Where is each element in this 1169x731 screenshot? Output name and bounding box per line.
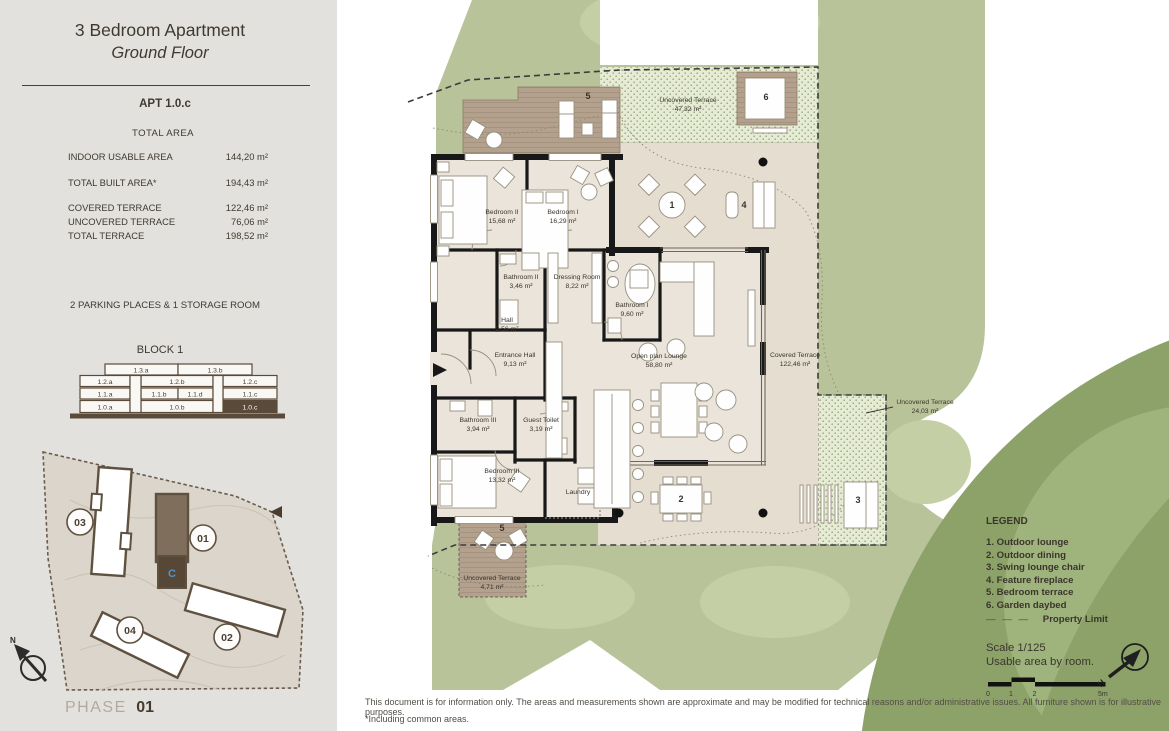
area-row: UNCOVERED TERRACE 76,06 m² [68,216,268,227]
grass-patch [879,420,971,504]
property-limit-label: Property Limit [1043,614,1108,625]
legend-heading: LEGEND [986,516,1156,527]
north-letter: N [1095,677,1107,689]
page-subtitle: Ground Floor [0,44,320,63]
block-unit-label: 1.0.a [97,405,112,412]
divider [22,85,310,86]
page-title: 3 Bedroom Apartment [0,20,320,41]
grass-patch [700,566,850,638]
legend-item: 5. Bedroom terrace [986,587,1156,600]
block-unit-label-current: 1.0.c [243,405,258,412]
usable-area-label: Usable area by room. [986,655,1094,669]
legend-item: 2. Outdoor dining [986,550,1156,563]
marker-4: 4 [741,200,746,210]
area-label: TOTAL TERRACE [68,230,144,241]
area-label: TOTAL BUILT AREA* [68,177,157,188]
area-row: INDOOR USABLE AREA 144,20 m² [68,151,268,162]
scale-note: Scale 1/125 Usable area by room. [986,641,1094,669]
building-badge-04: 04 [124,625,136,637]
property-limit-legend: — — — Property Limit [986,614,1108,625]
area-value: 198,52 m² [226,230,268,241]
marker-6: 6 [763,92,768,102]
phase-label: PHASE 01 [65,699,154,716]
area-value: 122,46 m² [226,202,268,213]
area-label: UNCOVERED TERRACE [68,216,175,227]
legend-item: 4. Feature fireplace [986,575,1156,588]
total-area-heading: TOTAL AREA [0,128,326,139]
block-unit-label: 1.1.b [151,392,166,399]
scale-label: Scale 1/125 [986,641,1094,655]
block-unit-label: 1.1.c [243,392,258,399]
dashed-line-icon: — — — [986,614,1030,625]
area-row: COVERED TERRACE 122,46 m² [68,202,268,213]
marker-5-bottom: 5 [499,523,504,533]
floorplan-page: 3 Bedroom Apartment Ground Floor APT 1.0… [0,0,1169,731]
area-value: 194,43 m² [226,177,268,188]
block-unit-label: 1.0.b [169,405,184,412]
block-unit-label: 1.3.b [207,368,222,375]
disclaimer-note: *Including common areas. [365,714,765,724]
area-value: 76,06 m² [231,216,268,227]
area-row: TOTAL TERRACE 198,52 m² [68,230,268,241]
block-unit-label: 1.3.a [133,368,148,375]
marker-1: 1 [669,200,674,210]
marker-5-top: 5 [585,91,590,101]
area-label: INDOOR USABLE AREA [68,151,173,162]
phase-number: 01 [136,699,154,716]
block-unit-label: 1.2.c [243,379,258,386]
parking-note: 2 PARKING PLACES & 1 STORAGE ROOM [0,300,330,311]
north-compass-icon: N [1093,636,1157,692]
block-heading: BLOCK 1 [0,344,320,356]
apartment-code: APT 1.0.c [0,98,330,110]
building-badge-01: 01 [197,533,209,545]
unit-marker-c: C [168,568,176,580]
building-badge-02: 02 [221,632,233,644]
area-label: COVERED TERRACE [68,202,162,213]
block-ground-bar [70,414,285,419]
marker-2: 2 [678,494,683,504]
info-sidebar: 3 Bedroom Apartment Ground Floor APT 1.0… [0,0,337,731]
legend-item: 1. Outdoor lounge [986,537,1156,550]
marker-3: 3 [855,495,860,505]
building-badge-03: 03 [74,517,86,529]
block-unit-label: 1.2.b [169,379,184,386]
block-section-diagram: 1.3.a 1.3.b 1.2.a 1.2.b 1.2.c 1.1.a 1.1.… [50,362,286,424]
area-row: TOTAL BUILT AREA* 194,43 m² [68,177,268,188]
north-letter: N [10,636,16,645]
legend-item: 6. Garden daybed [986,600,1156,613]
room-label: Laundry [566,489,591,496]
legend-panel: LEGEND 1. Outdoor lounge 2. Outdoor dini… [986,516,1156,613]
block-unit-label: 1.1.d [187,392,202,399]
phase-word: PHASE [65,699,127,716]
block-unit-label: 1.1.a [97,392,112,399]
outside-property-area [600,0,818,65]
area-value: 144,20 m² [226,151,268,162]
north-compass-icon: N [10,636,46,681]
legend-item: 3. Swing lounge chair [986,562,1156,575]
block-core [130,376,141,413]
site-plan: C 03 01 04 02 N [10,440,330,731]
block-unit-label: 1.2.a [97,379,112,386]
block-core [213,376,223,413]
